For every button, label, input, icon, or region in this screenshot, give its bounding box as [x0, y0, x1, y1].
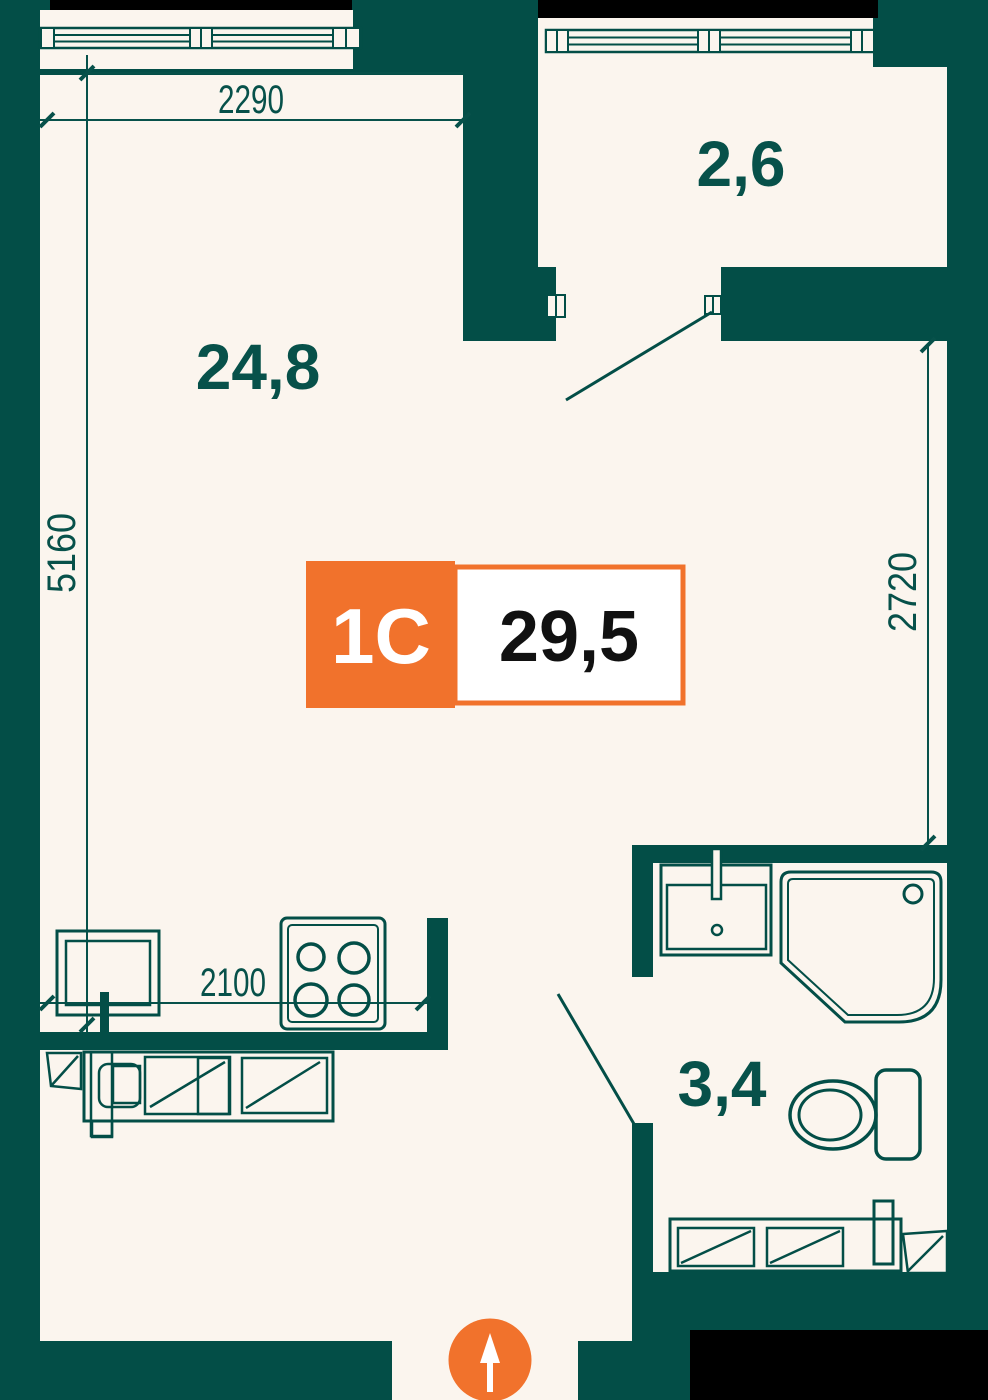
badge-type-label: 1С: [331, 592, 431, 680]
exterior-edge-bottom-right: [690, 1330, 988, 1400]
room-area-balcony: 2,6: [697, 128, 786, 200]
dimension-label: 5160: [40, 513, 84, 593]
window-symbol-living: [40, 28, 361, 48]
window-symbol-balcony: [546, 30, 874, 52]
bathroom-door-opening: [632, 977, 653, 1123]
north-arrow-icon: [449, 1319, 532, 1400]
floorplan-canvas: 2290 5160 2720 2100: [0, 0, 988, 1400]
room-area-living: 24,8: [196, 331, 321, 403]
dimension-label: 2290: [218, 78, 284, 122]
room-area-bathroom: 3,4: [678, 1048, 767, 1120]
dimension-label: 2100: [200, 961, 266, 1005]
exterior-edge-top-left: [50, 0, 352, 10]
badge-area-label: 29,5: [499, 597, 639, 677]
kitchen-counter-wall: [40, 1032, 448, 1050]
exterior-edge-top-right: [538, 0, 878, 18]
area-badge: 1С 29,5: [306, 561, 683, 708]
kitchen-counter-wall-end: [427, 918, 448, 1050]
dimension-label: 2720: [881, 552, 925, 632]
